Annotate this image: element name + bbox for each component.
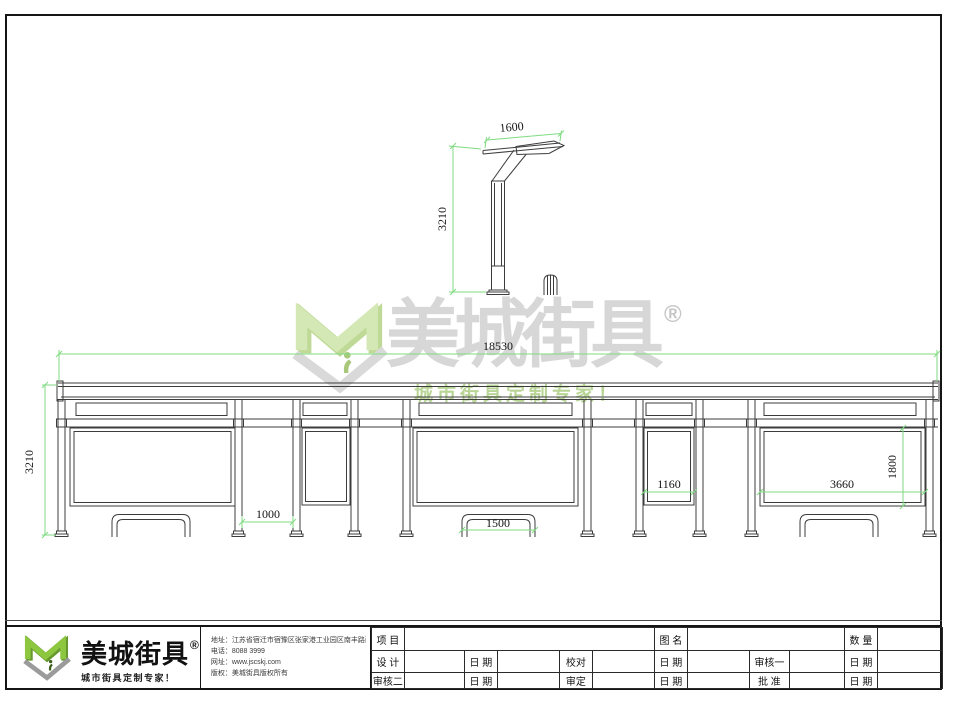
dim-total-length: 18530 [483, 339, 513, 353]
brand-name: 美城街具® [81, 632, 200, 667]
value-date-1 [497, 651, 559, 673]
label-review2: 审核二 [371, 673, 404, 689]
dim-side-panel-width: 1160 [657, 477, 681, 491]
value-date-4 [497, 673, 559, 689]
shelter-front-elevation [55, 381, 939, 537]
value-date-5 [687, 673, 749, 689]
label-design: 设 计 [371, 651, 404, 673]
brand-name-text: 美城街具 [81, 639, 189, 669]
label-final-review: 审定 [559, 673, 592, 689]
label-date-5: 日 期 [654, 673, 687, 689]
label-proof: 校对 [559, 651, 592, 673]
label-approve: 批 准 [749, 673, 789, 689]
value-date-2 [687, 651, 749, 673]
value-drawing-name [687, 628, 844, 651]
label-drawing-name: 图 名 [654, 628, 687, 651]
title-block: 项 目 图 名 数 量 设 计 日 期 校对 日 期 审核一 日 期 [371, 627, 943, 688]
brand-logo-icon [21, 631, 73, 685]
ad-panels [70, 428, 925, 506]
post-section-detail [544, 275, 557, 295]
dim-pole-height: 3210 [435, 207, 449, 231]
dim-ad-panel-height: 1800 [885, 455, 899, 479]
contact-phone: 电话：8088 3999 [211, 646, 366, 657]
dim-bench-length: 1500 [486, 516, 510, 530]
value-final-review [592, 673, 654, 689]
brand-logo-block: 美城街具® 城市街具定制专家！ [7, 627, 201, 688]
contact-info: 地址：江苏省宿迁市宿豫区张家港工业园区南丰路西侧1号 电话：8088 3999 … [201, 627, 371, 688]
label-date-2: 日 期 [654, 651, 687, 673]
value-date-3 [877, 651, 942, 673]
value-review1 [789, 651, 844, 673]
value-date-6 [877, 673, 942, 689]
dim-pole-arm-width: 1600 [499, 119, 524, 135]
label-project: 项 目 [371, 628, 404, 651]
registered-mark: ® [190, 638, 200, 652]
label-date-1: 日 期 [464, 651, 497, 673]
value-proof [592, 651, 654, 673]
contact-copyright: 版权：美城街具版权所有 [211, 668, 366, 679]
value-project [404, 628, 654, 651]
dim-ad-panel-width: 3660 [830, 477, 854, 491]
label-date-4: 日 期 [464, 673, 497, 689]
contact-website: 网址：www.jscskj.com [211, 657, 366, 668]
label-review1: 审核一 [749, 651, 789, 673]
cad-sheet-svg: 1600 3210 18530 3210 1000 1500 [0, 0, 960, 704]
dimension-annotations: 1600 3210 18530 3210 1000 1500 [22, 119, 940, 538]
contact-address: 地址：江苏省宿迁市宿豫区张家港工业园区南丰路西侧1号 [211, 635, 366, 646]
value-approve [789, 673, 844, 689]
value-design [404, 651, 464, 673]
dim-door-gap-width: 1000 [256, 507, 280, 521]
value-quantity [877, 628, 942, 651]
light-pole-side-view [483, 141, 564, 295]
brand-tagline: 城市街具定制专家！ [81, 671, 200, 684]
label-quantity: 数 量 [844, 628, 877, 651]
value-review2 [404, 673, 464, 689]
label-date-6: 日 期 [844, 673, 877, 689]
sheet-footer: 美城街具® 城市街具定制专家！ 地址：江苏省宿迁市宿豫区张家港工业园区南丰路西侧… [5, 625, 942, 690]
label-date-3: 日 期 [844, 651, 877, 673]
dim-shelter-height: 3210 [22, 450, 36, 474]
